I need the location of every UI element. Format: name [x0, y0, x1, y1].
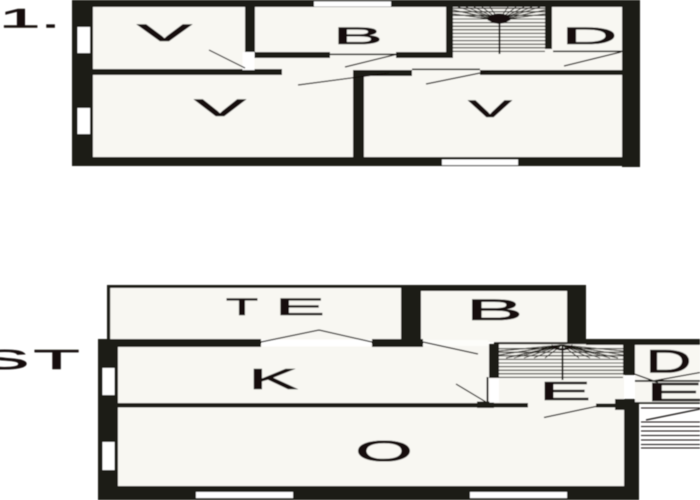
svg-text:T: T [226, 293, 258, 320]
svg-text:O: O [355, 435, 413, 468]
svg-text:V: V [137, 19, 191, 46]
svg-text:D: D [562, 22, 617, 49]
svg-text:D: D [645, 343, 691, 379]
svg-text:V: V [468, 96, 512, 123]
svg-text:V: V [194, 94, 245, 121]
svg-text:ST: ST [0, 344, 84, 375]
svg-text:B: B [333, 22, 383, 49]
svg-text:1.: 1. [0, 3, 61, 33]
svg-text:E: E [275, 293, 325, 320]
svg-text:E: E [646, 378, 700, 407]
svg-text:B: B [466, 293, 523, 327]
svg-text:E: E [539, 377, 591, 406]
svg-text:K: K [248, 363, 297, 396]
